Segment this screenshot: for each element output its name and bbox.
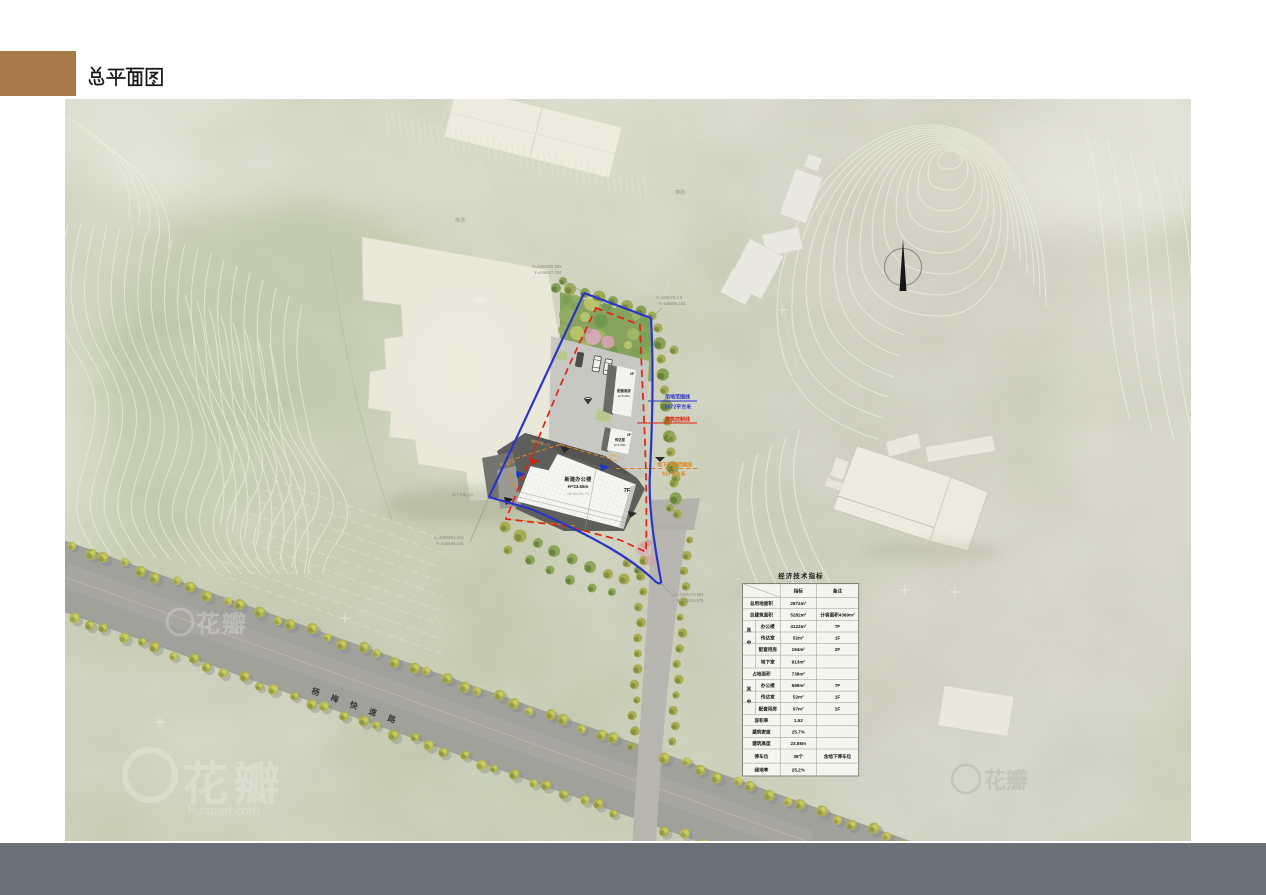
- svg-text:建筑控制线: 建筑控制线: [664, 416, 690, 423]
- svg-text:H=8.45m: H=8.45m: [618, 394, 631, 398]
- svg-text:23.85m: 23.85m: [791, 741, 807, 746]
- svg-text:38个: 38个: [793, 753, 803, 759]
- svg-text:地下室: 地下室: [761, 658, 775, 665]
- svg-text:2F: 2F: [835, 647, 841, 652]
- svg-text:H=23.65m: H=23.65m: [568, 484, 589, 489]
- svg-text:建筑密度: 建筑密度: [751, 728, 771, 735]
- svg-text:X=3296479.961: X=3296479.961: [674, 592, 704, 597]
- svg-text:194m²: 194m²: [792, 647, 806, 652]
- svg-text:配套用房: 配套用房: [759, 705, 778, 712]
- svg-text:传达室: 传达室: [614, 437, 626, 442]
- svg-text:X=3296686.585: X=3296686.585: [532, 264, 562, 269]
- svg-text:经济技术指标: 经济技术指标: [778, 571, 824, 580]
- svg-text:52m²: 52m²: [793, 636, 804, 641]
- svg-text:含地下停车位: 含地下停车位: [824, 753, 852, 760]
- svg-text:Y=446846.240: Y=446846.240: [436, 541, 464, 546]
- svg-text:堆场: 堆场: [455, 217, 465, 224]
- svg-text:备注: 备注: [832, 587, 843, 594]
- svg-text:H=3.45m: H=3.45m: [614, 443, 627, 447]
- svg-text:X=3296861.635: X=3296861.635: [434, 535, 464, 540]
- svg-text:913m²: 913m²: [792, 659, 806, 664]
- svg-text:1.52: 1.52: [794, 718, 803, 723]
- svg-text:堆场: 堆场: [675, 189, 685, 196]
- svg-text:97m²: 97m²: [793, 706, 804, 711]
- svg-text:其: 其: [747, 626, 752, 633]
- svg-text:停车位: 停车位: [755, 753, 769, 760]
- svg-text:589m²: 589m²: [792, 683, 806, 688]
- svg-text:配套用房: 配套用房: [617, 388, 631, 393]
- svg-text:中: 中: [747, 698, 752, 705]
- svg-text:新建办公楼: 新建办公楼: [565, 475, 593, 483]
- svg-text:传达室: 传达室: [760, 635, 775, 642]
- svg-text:4123m²: 4123m²: [790, 624, 806, 629]
- svg-text:建筑高度: 建筑高度: [751, 740, 771, 747]
- svg-text:用地范围线: 用地范围线: [664, 394, 690, 401]
- svg-text:计容面积4369m²: 计容面积4369m²: [820, 611, 855, 618]
- svg-text:2872m²: 2872m²: [790, 601, 806, 606]
- svg-text:传达室: 传达室: [760, 694, 775, 701]
- svg-text:配套用房: 配套用房: [759, 646, 778, 653]
- svg-text:Y=446899.162: Y=446899.162: [658, 301, 686, 306]
- svg-text:绿地率: 绿地率: [755, 766, 769, 773]
- svg-text:25.2%: 25.2%: [792, 767, 805, 772]
- svg-text:占地面积: 占地面积: [752, 671, 771, 678]
- svg-text:738m²: 738m²: [792, 672, 806, 677]
- svg-text:花瓣: 花瓣: [984, 768, 1028, 793]
- svg-text:1F: 1F: [835, 695, 841, 700]
- svg-text:总用地面积: 总用地面积: [750, 600, 773, 607]
- svg-text:7F: 7F: [835, 683, 841, 688]
- svg-text:huaban.com: huaban.com: [188, 803, 260, 818]
- svg-text:其: 其: [747, 686, 752, 693]
- svg-text:办公楼: 办公楼: [761, 623, 775, 630]
- svg-text:Y=446837.704: Y=446837.704: [534, 270, 562, 275]
- svg-text:地下车库入口: 地下车库入口: [452, 492, 474, 497]
- svg-text:总建筑面积: 总建筑面积: [750, 611, 773, 618]
- svg-text:25.7%: 25.7%: [792, 729, 805, 734]
- svg-text:办公楼: 办公楼: [761, 682, 775, 689]
- svg-text:中: 中: [747, 639, 752, 646]
- svg-text:913平方米: 913平方米: [662, 471, 686, 478]
- svg-text:2F: 2F: [835, 706, 841, 711]
- svg-text:5282m²: 5282m²: [790, 612, 806, 617]
- svg-text:52m²: 52m²: [793, 695, 804, 700]
- svg-text:2872平方米: 2872平方米: [665, 404, 692, 411]
- svg-text:Y=446815.975: Y=446815.975: [676, 598, 704, 603]
- svg-text:指标: 指标: [794, 587, 804, 594]
- svg-text:±0.00=31.71: ±0.00=31.71: [567, 491, 590, 496]
- svg-text:地下车库范围线: 地下车库范围线: [657, 462, 692, 469]
- svg-text:花瓣: 花瓣: [196, 611, 248, 638]
- svg-text:X=329678.2.5: X=329678.2.5: [656, 295, 683, 300]
- svg-text:1F: 1F: [835, 636, 841, 641]
- svg-text:容积率: 容积率: [754, 717, 769, 724]
- svg-text:7F: 7F: [624, 488, 631, 494]
- svg-text:7F: 7F: [835, 624, 841, 629]
